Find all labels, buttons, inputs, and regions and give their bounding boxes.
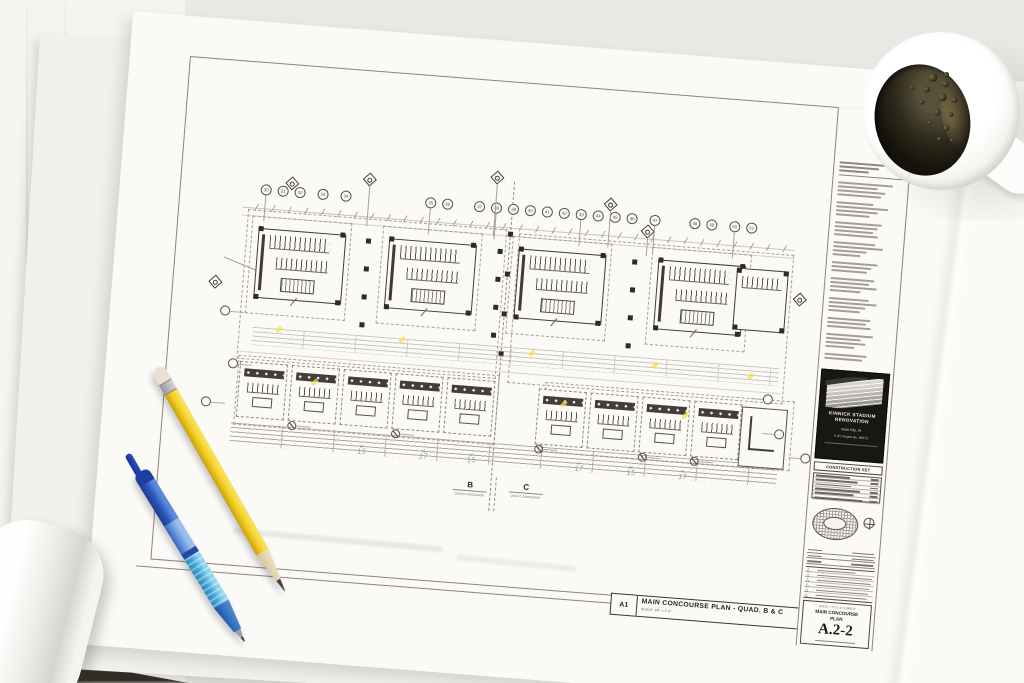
grid-bubble: 35 [425, 197, 437, 209]
leader-line [211, 402, 225, 404]
stall-row [597, 414, 630, 426]
restroom-room [288, 365, 340, 425]
pencil-lead [235, 633, 252, 646]
note-number: 15 [355, 449, 369, 456]
restroom-room [236, 361, 288, 421]
column [471, 243, 476, 248]
fixture [706, 437, 727, 449]
column [340, 232, 345, 237]
grid-bubble: 34 [340, 190, 352, 202]
column-marker [495, 277, 500, 282]
fixture [252, 397, 273, 409]
divider [825, 442, 878, 447]
column [735, 332, 740, 337]
section-marker-icon [490, 170, 504, 184]
detail-reference: A1 [611, 594, 638, 616]
stall-row [701, 422, 734, 434]
fixture [355, 405, 376, 417]
concourse-module [512, 242, 607, 337]
fixture-counter [244, 368, 285, 379]
text-line [825, 345, 855, 349]
column-marker [491, 332, 496, 337]
column [465, 310, 470, 315]
coffee-bubble [944, 72, 950, 78]
column [779, 328, 784, 333]
quad-label: CQUAD C CONCOURSE [508, 482, 543, 499]
coffee-bubble [919, 99, 925, 105]
fixture-counter [646, 404, 687, 415]
stadium-photo [823, 375, 885, 412]
column [258, 226, 263, 231]
column [600, 253, 605, 258]
grid-bubble: 37 [474, 201, 486, 213]
grid-bubble: 31 [277, 185, 289, 197]
fixture-island [410, 288, 445, 305]
fixture-counter [348, 376, 389, 387]
revision-triangle-icon: △ [804, 592, 808, 598]
column-marker [628, 315, 633, 320]
concourse-module [252, 222, 347, 317]
grid-bubble: 41 [541, 206, 553, 218]
column [389, 236, 394, 241]
grid-bubble: 48 [689, 218, 701, 230]
fixture-island [680, 309, 715, 326]
stall-row [454, 399, 487, 411]
grid-bubble: 51 [746, 222, 758, 234]
section-marker-icon [208, 275, 222, 289]
keynote-circle [220, 305, 231, 316]
stall-row [247, 383, 280, 395]
column [653, 325, 658, 330]
stall-row [299, 387, 332, 399]
fixture [654, 433, 675, 445]
coffee-bubble [927, 120, 932, 125]
column-marker [493, 305, 498, 310]
section-marker-icon [793, 293, 807, 307]
wall [748, 448, 774, 452]
fixture-counter [595, 400, 636, 411]
text-line [831, 269, 867, 274]
grid-bubble: 47 [649, 215, 661, 227]
grid-bubble: 32 [294, 187, 306, 199]
end-module [732, 268, 789, 334]
pencil-handwritten-note: W15 [355, 445, 369, 456]
leader-line [230, 311, 244, 313]
restroom-room [638, 397, 690, 457]
concourse-module [383, 232, 478, 327]
restroom-room [535, 388, 587, 448]
grid-bubble: 50 [729, 221, 741, 233]
column [513, 314, 518, 319]
column-marker [497, 249, 502, 254]
fixture-counter [400, 380, 441, 391]
grid-bubble: 38 [491, 202, 503, 214]
wall [748, 416, 753, 450]
grid-bubble: 46 [626, 213, 638, 225]
grid-bubble: 44 [592, 210, 604, 222]
column [784, 271, 789, 276]
column-marker [630, 287, 635, 292]
column [732, 324, 737, 329]
quad-divider-line [493, 477, 497, 511]
keynote-circle [201, 396, 212, 407]
concourse-module [652, 253, 747, 348]
column [519, 246, 524, 251]
text-line [832, 253, 860, 257]
pencil-handwritten-note: M17 [676, 470, 690, 481]
project-identity-panel: KINNICK STADIUM RENOVATION Iowa City, IA… [814, 369, 890, 464]
coffee-bubble [923, 86, 930, 93]
sheet-index-table [811, 472, 882, 503]
grid-bubble: 45 [609, 211, 621, 223]
coffee-bubble [910, 85, 915, 90]
column [595, 321, 600, 326]
note-number: 17 [676, 474, 690, 481]
column-marker [361, 294, 366, 299]
text-line [836, 213, 870, 217]
column-marker [632, 259, 637, 264]
column-marker [359, 322, 364, 327]
fixture [303, 401, 324, 413]
fixture-island [280, 278, 315, 295]
note-number: 15 [624, 470, 638, 477]
quad-label: BQUAD B CONCOURSE [452, 480, 487, 497]
desk-scene: 3031323334353637383940414243444546474849… [0, 0, 1024, 683]
column-marker [366, 238, 371, 243]
grid-bubble: 42 [558, 207, 570, 219]
column-marker [364, 266, 369, 271]
pencil-handwritten-note: W15 [464, 453, 478, 464]
grid-bubble: 49 [706, 219, 718, 231]
restroom-room [340, 369, 392, 429]
stall-row [402, 395, 435, 407]
pencil-handwritten-note: W15 [624, 466, 638, 477]
fixture-counter [451, 385, 492, 396]
north-arrow-icon [863, 517, 875, 529]
stall-row [649, 418, 682, 430]
text-line [828, 309, 860, 313]
restroom-room [391, 373, 443, 433]
coffee-bubble [937, 137, 942, 142]
section-marker-icon [604, 197, 618, 211]
column [737, 268, 742, 273]
text-line [839, 169, 869, 173]
note-number: 15 [464, 457, 478, 464]
column [658, 257, 663, 262]
fixture-counter [698, 408, 739, 419]
fixture [602, 429, 623, 441]
warning-triangle-icon [772, 420, 783, 429]
project-name: KINNICK STADIUM RENOVATION [818, 409, 886, 426]
column [335, 300, 340, 305]
restroom-room [443, 377, 495, 437]
text-line [830, 289, 861, 293]
text-line [824, 357, 862, 362]
note-number: 17 [416, 453, 430, 460]
coffee-mug [862, 32, 1020, 190]
blueprint-sheet: 3031323334353637383940414243444546474849… [146, 56, 948, 674]
coffee-bubble [933, 108, 941, 116]
pencil-handwritten-note: M17 [572, 462, 586, 473]
restroom-room [586, 392, 638, 452]
stall-row [546, 410, 579, 422]
revision-table: △△△△△△ [803, 566, 874, 603]
note-number: 17 [572, 466, 586, 473]
column [384, 304, 389, 309]
section-marker-icon [363, 172, 377, 186]
fixture [550, 424, 571, 436]
fixture-island [540, 298, 575, 315]
grid-bubble: 43 [575, 209, 587, 221]
column-marker [625, 343, 630, 348]
fixture [459, 413, 480, 425]
stall-row [350, 391, 383, 403]
pencil-handwritten-note: M17 [416, 449, 430, 460]
column [253, 294, 258, 299]
restroom-room [690, 401, 742, 461]
grid-bubble: 30 [260, 184, 272, 196]
sheet-stamp: SHEET TITLE & NUMBER MAIN CONCOURSE PLAN… [800, 600, 872, 649]
key-plan [808, 501, 880, 550]
grid-bubble: 40 [524, 205, 536, 217]
grid-bubble: 39 [508, 203, 520, 215]
coffee-bubble [928, 72, 939, 83]
fixture [407, 409, 428, 421]
grid-bubble: 33 [317, 188, 329, 200]
grid-bubble: 36 [442, 198, 454, 210]
